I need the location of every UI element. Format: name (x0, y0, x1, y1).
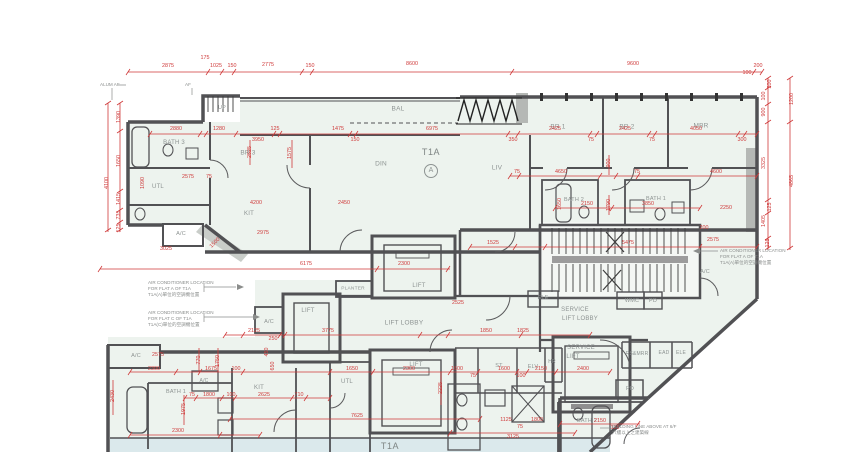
floor-plan-sheet: BATH 3BR 3UTLUPBALDINT1AALIVBR 1BR 2MBRB… (0, 0, 854, 452)
floor-fill-layer (108, 97, 757, 452)
up-stair (208, 96, 233, 112)
floor-plan-drawing (0, 0, 854, 452)
